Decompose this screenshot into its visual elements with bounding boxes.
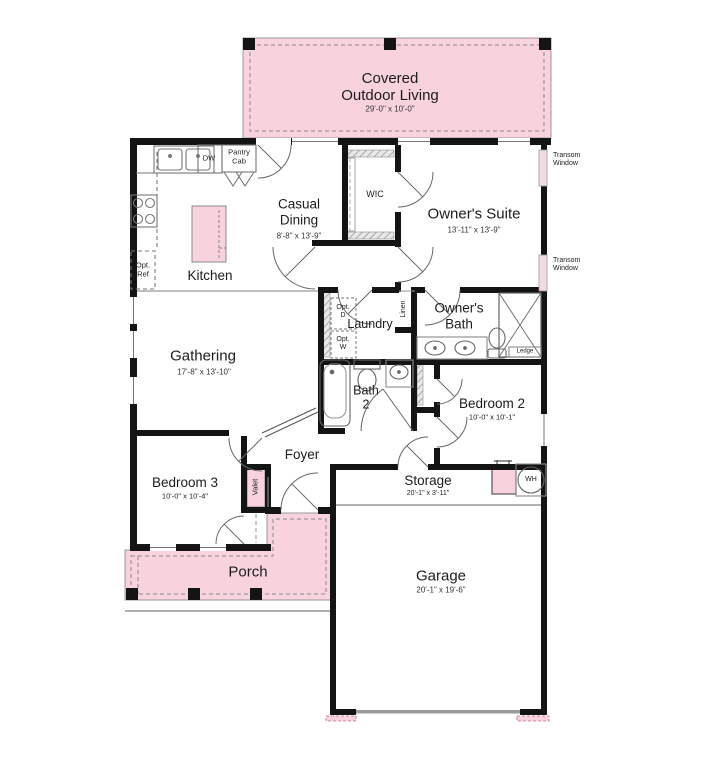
label-owners-suite: Owner's Suite (428, 205, 521, 222)
label-bedroom3: Bedroom 3 (152, 475, 218, 491)
wic-door (398, 172, 433, 207)
vanity-counter (417, 337, 487, 359)
label-laundry: Laundry (347, 317, 392, 331)
transom-window-marker-upper (539, 150, 547, 186)
label-valet: Valet (252, 479, 261, 496)
dims-gathering: 17'-8" x 13'-10" (177, 367, 231, 376)
label-owners-bath: Owner's Bath (434, 300, 483, 331)
label-dishwasher: DW (203, 155, 216, 164)
garage-door (326, 710, 549, 721)
toilet (489, 328, 505, 348)
cased-opening (262, 408, 318, 437)
label-wic: WIC (366, 189, 384, 199)
wic-shelf-bottom (346, 232, 394, 239)
bedroom2-door (437, 417, 467, 447)
label-covered-outdoor-living: Covered Outdoor Living (341, 70, 439, 105)
label-casual-dining: Casual Dining (278, 196, 320, 227)
label-water-heater: WH (525, 476, 537, 484)
label-foyer: Foyer (285, 447, 320, 463)
dims-bedroom3: 10'-0" x 10'-4" (162, 493, 208, 502)
owners-suite-door (398, 247, 433, 282)
garage-entry-door (398, 437, 428, 467)
label-pantry-cab: Pantry Cab (228, 148, 250, 165)
patio-door-opening (256, 138, 291, 145)
label-storage: Storage (404, 473, 451, 489)
label-opt-ref: Opt. Ref (136, 261, 150, 278)
label-bath2: Bath 2 (353, 384, 379, 413)
label-bedroom2: Bedroom 2 (459, 396, 525, 412)
label-opt-w: Opt. W (336, 336, 349, 352)
porch-area (125, 513, 332, 600)
hall-door (273, 247, 315, 289)
pantry-corner (224, 172, 254, 186)
transom-window-marker-lower (539, 255, 547, 291)
dims-garage: 20'-1" x 19'-6" (416, 585, 465, 594)
dims-storage: 20'-1" x 3'-11" (407, 490, 450, 498)
label-opt-d: Opt. D (336, 304, 349, 320)
dims-bedroom2: 10'-0" x 10'-1" (469, 414, 515, 423)
label-porch: Porch (228, 563, 267, 580)
label-linen: Linen (400, 300, 408, 317)
utility-appliance (492, 466, 516, 494)
bedroom2-closet-shelf (417, 362, 423, 405)
floor-plan: Covered Outdoor Living 29'-0" x 10'-0" C… (0, 0, 723, 774)
label-garage: Garage (416, 567, 466, 584)
dims-covered-outdoor-living: 29'-0" x 10'-0" (365, 104, 414, 113)
label-gathering: Gathering (170, 347, 236, 364)
label-transom-window-lower: Transom Window (553, 257, 580, 274)
patio-door (258, 145, 291, 178)
dims-owners-suite: 13'-11" x 13'-9" (447, 225, 500, 234)
kitchen-island (192, 206, 226, 262)
label-ledge: Ledge (517, 349, 534, 356)
label-transom-window-upper: Transom Window (553, 152, 580, 169)
dims-casual-dining: 8'-8" x 13'-9" (277, 231, 322, 240)
front-door (281, 473, 318, 510)
label-kitchen: Kitchen (187, 268, 232, 284)
bedroom3-closet-door (216, 516, 244, 544)
wic-shelf-top (346, 150, 394, 157)
